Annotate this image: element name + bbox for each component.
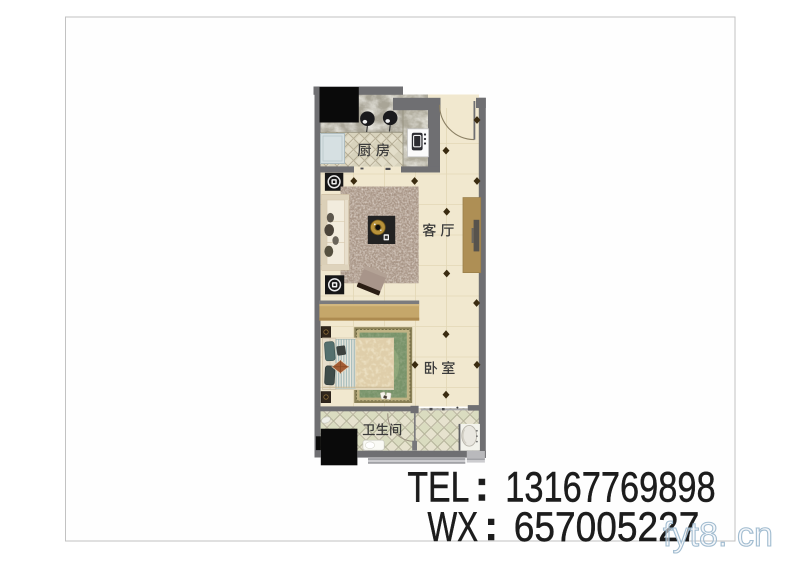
- svg-text::: :: [484, 502, 498, 549]
- svg-text:WX: WX: [428, 503, 479, 550]
- svg-text:fyt8. cn: fyt8. cn: [663, 516, 773, 554]
